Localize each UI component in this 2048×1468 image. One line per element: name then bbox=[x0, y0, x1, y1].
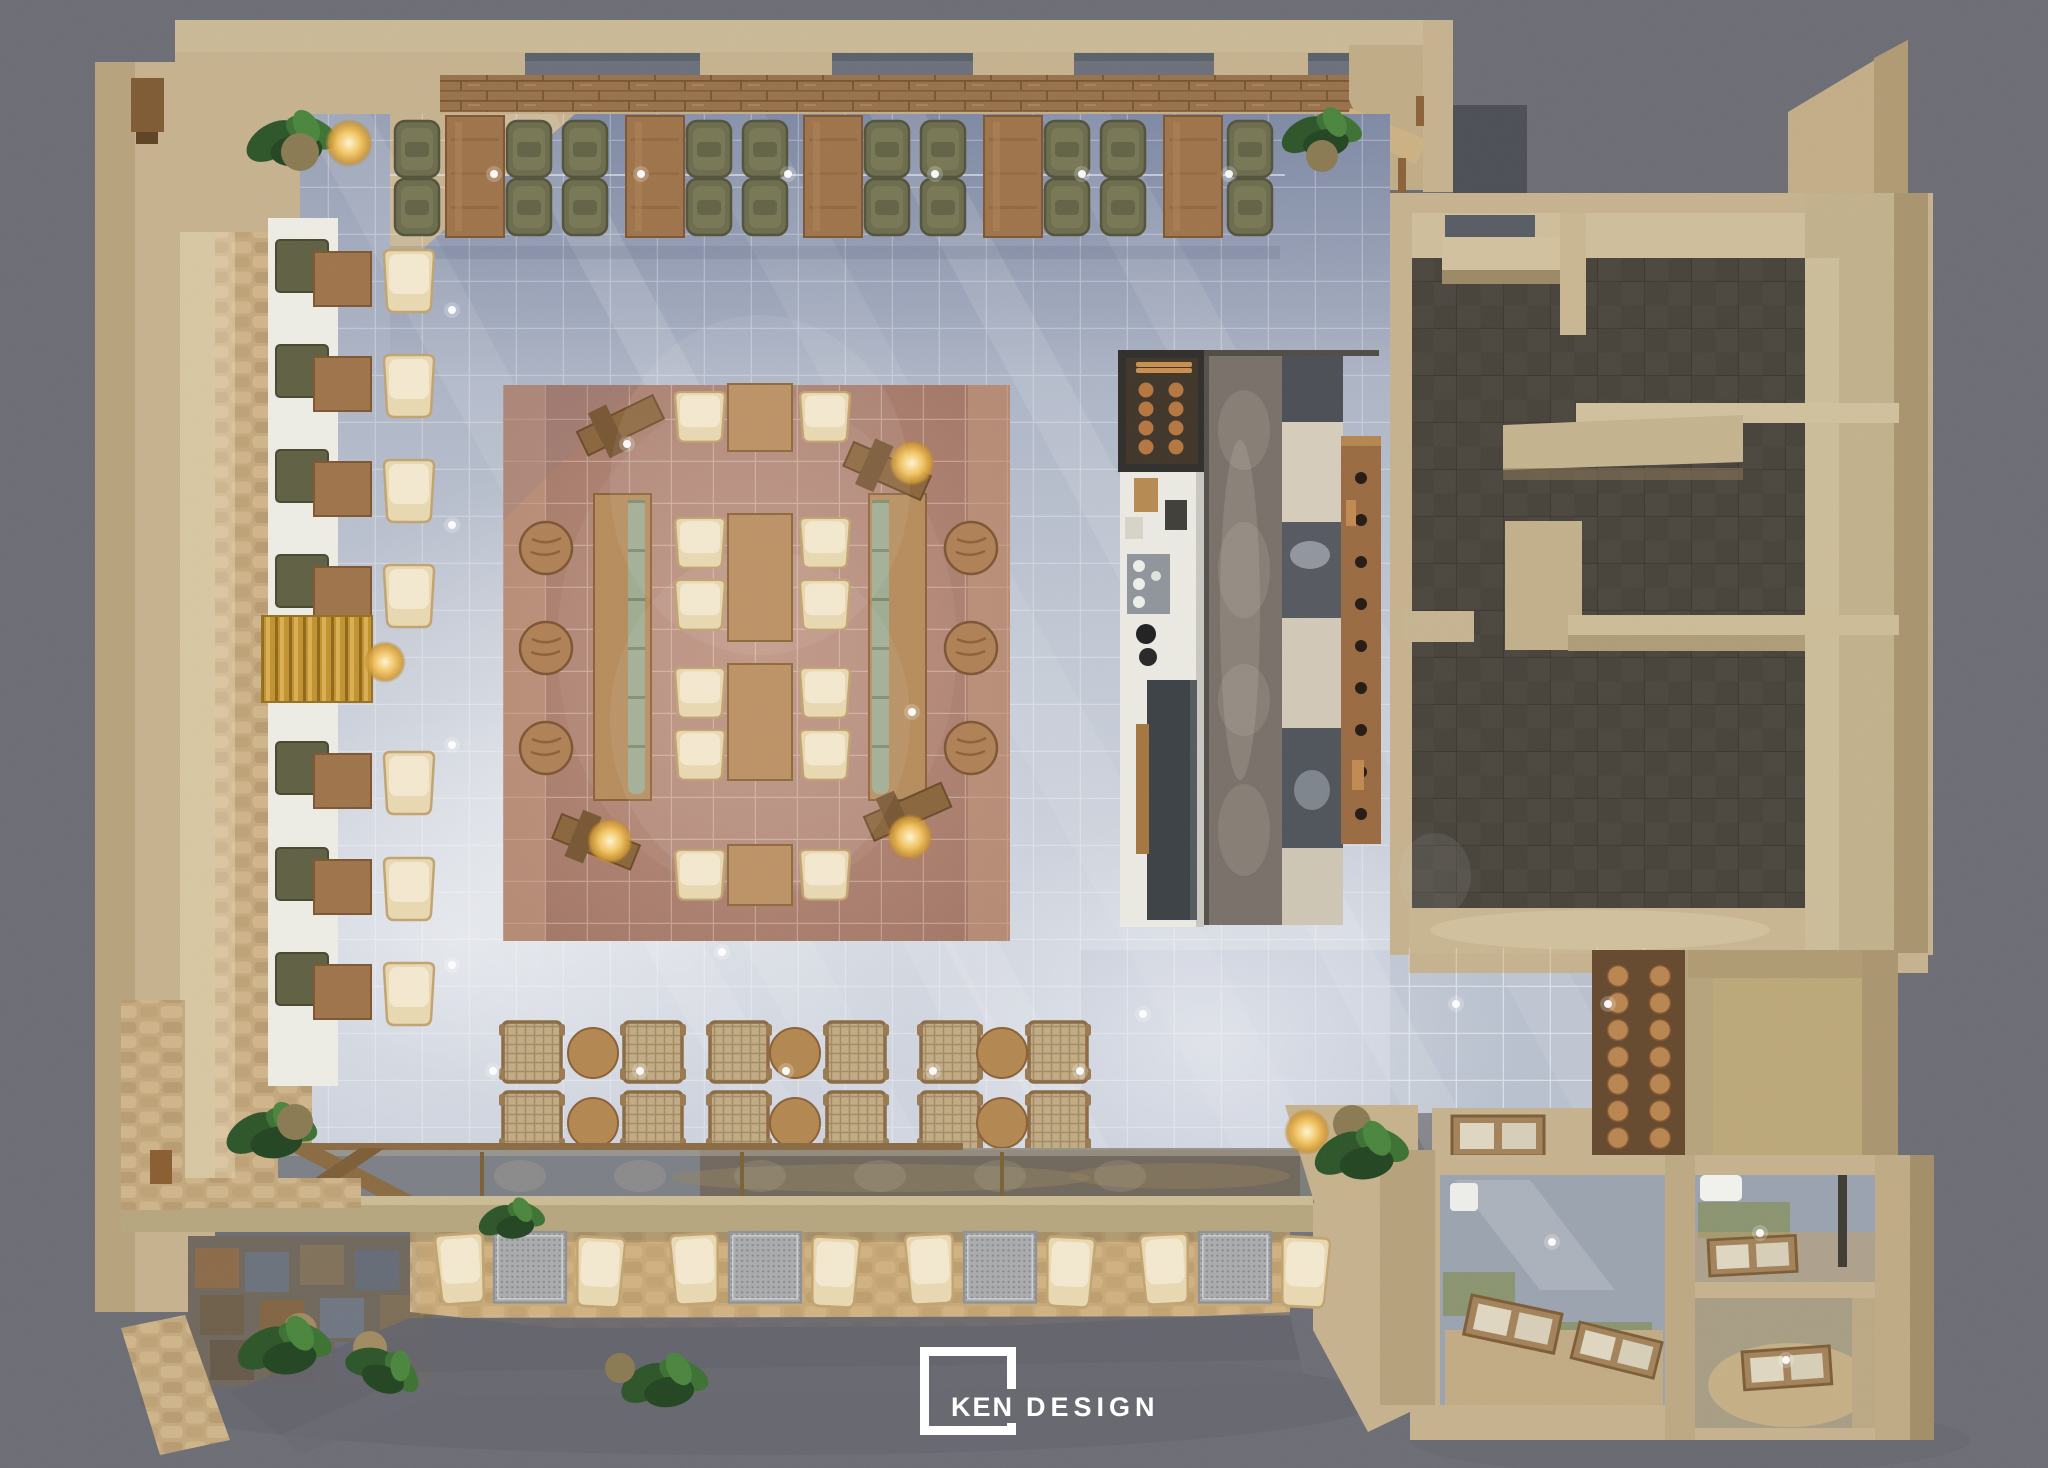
svg-text:KEN: KEN bbox=[951, 1392, 1014, 1422]
svg-text:DESIGN: DESIGN bbox=[1026, 1392, 1160, 1422]
